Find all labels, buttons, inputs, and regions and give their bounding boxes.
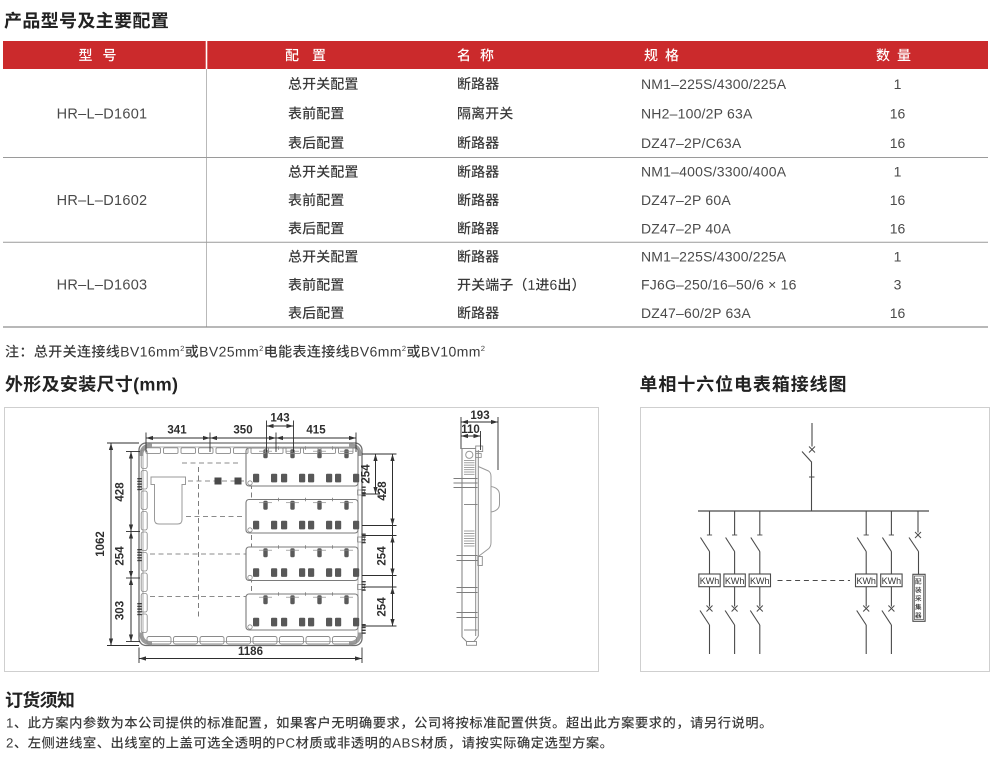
svg-text:16: 16 (890, 220, 906, 236)
svg-text:KWh: KWh (856, 576, 876, 586)
svg-text:DZ47–2P 60A: DZ47–2P 60A (641, 192, 731, 208)
svg-text:254: 254 (377, 597, 389, 617)
svg-text:KWh: KWh (700, 576, 720, 586)
svg-text:HR–L–D1603: HR–L–D1603 (57, 278, 148, 294)
svg-text:415: 415 (306, 425, 326, 437)
svg-text:350: 350 (233, 425, 252, 437)
svg-text:FJ6G–250/16–50/6 × 16: FJ6G–250/16–50/6 × 16 (641, 277, 797, 293)
svg-text:NM1–225S/4300/225A: NM1–225S/4300/225A (641, 249, 787, 265)
svg-text:KWh: KWh (725, 576, 745, 586)
svg-text:16: 16 (890, 135, 906, 151)
svg-text:16: 16 (890, 192, 906, 208)
svg-text:254: 254 (115, 546, 127, 566)
svg-text:DZ47–2P/C63A: DZ47–2P/C63A (641, 135, 742, 151)
svg-text:1186: 1186 (238, 646, 263, 658)
svg-text:254: 254 (361, 464, 373, 484)
svg-text:193: 193 (470, 410, 489, 422)
svg-text:DZ47–2P 40A: DZ47–2P 40A (641, 220, 731, 236)
svg-text:NM1–225S/4300/225A: NM1–225S/4300/225A (641, 76, 787, 92)
svg-text:DZ47–60/2P 63A: DZ47–60/2P 63A (641, 305, 751, 321)
svg-text:428: 428 (377, 481, 389, 501)
svg-text:KWh: KWh (750, 576, 770, 586)
svg-text:1: 1 (894, 249, 902, 265)
svg-text:HR–L–D1602: HR–L–D1602 (57, 193, 148, 209)
svg-text:110: 110 (461, 424, 480, 436)
svg-text:NM1–400S/3300/400A: NM1–400S/3300/400A (641, 164, 787, 180)
svg-text:428: 428 (115, 482, 127, 502)
svg-text:HR–L–D1601: HR–L–D1601 (57, 107, 148, 123)
svg-text:254: 254 (377, 546, 389, 566)
svg-text:1: 1 (894, 76, 902, 92)
svg-text:KWh: KWh (882, 576, 902, 586)
svg-text:16: 16 (890, 105, 906, 121)
svg-text:303: 303 (115, 601, 127, 620)
svg-text:1: 1 (894, 164, 902, 180)
svg-text:341: 341 (167, 425, 187, 437)
svg-text:143: 143 (270, 413, 289, 425)
svg-text:NH2–100/2P 63A: NH2–100/2P 63A (641, 105, 753, 121)
svg-text:1062: 1062 (95, 531, 107, 557)
svg-text:3: 3 (894, 277, 902, 293)
svg-text:16: 16 (890, 305, 906, 321)
